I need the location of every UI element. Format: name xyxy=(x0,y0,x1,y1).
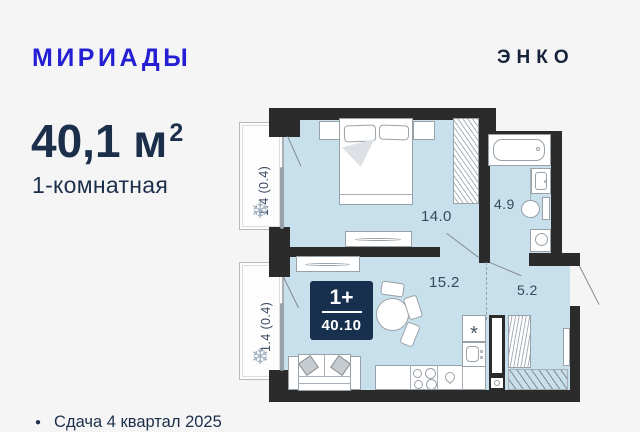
counter-divider xyxy=(410,365,411,390)
badge-divider xyxy=(322,311,362,313)
chair xyxy=(380,280,405,297)
pillow xyxy=(379,124,410,140)
sofa-armrest xyxy=(350,356,361,390)
label-bedroom-area: 14.0 xyxy=(421,209,452,224)
area-title: 40,1 м2 xyxy=(31,116,181,167)
developer-logo: ЭНКО xyxy=(497,47,575,69)
wall-bath-right xyxy=(551,131,562,261)
stove-burner xyxy=(414,380,423,389)
nightstand-right xyxy=(413,121,435,140)
snowflake-icon: ❄ xyxy=(251,346,269,368)
label-hall-area: 5.2 xyxy=(517,283,538,297)
area-superscript: 2 xyxy=(169,119,183,147)
stove-burner xyxy=(413,369,422,378)
vent-shaft xyxy=(489,315,505,376)
counter-divider xyxy=(462,365,463,390)
counter-divider xyxy=(437,365,438,390)
apartment-badge: 1+ 40.10 xyxy=(310,281,373,340)
wall-corner-tl xyxy=(269,108,300,137)
bath-sink-drain xyxy=(544,180,547,183)
delivery-text: Сдача 4 квартал 2025 xyxy=(54,413,222,432)
wall-bath-bottom xyxy=(529,253,580,266)
badge-area: 40.10 xyxy=(321,317,361,334)
hall-mirror xyxy=(563,328,570,366)
bed-fold-line xyxy=(340,194,412,195)
sink-basin xyxy=(466,346,479,362)
washing-machine-drum xyxy=(535,233,548,246)
faucet-dot xyxy=(480,350,483,353)
wardrobe-hall xyxy=(508,315,531,368)
stove-burner xyxy=(425,368,436,379)
label-bathroom-area: 4.9 xyxy=(494,197,515,211)
entry-mat xyxy=(508,369,568,390)
nightstand-left xyxy=(319,121,340,140)
brand-logo: МИРИАДЫ xyxy=(32,44,191,73)
snowflake-icon: ❄ xyxy=(251,200,269,222)
shaft-access-circle xyxy=(494,380,500,386)
bullet-icon: ● xyxy=(35,417,41,428)
faucet-dot xyxy=(480,356,483,359)
sofa-line xyxy=(298,383,351,384)
tv-stand-handle xyxy=(305,263,350,266)
listing-card: МИРИАДЫ ЭНКО 40,1 м2 1-комнатная xyxy=(0,0,640,429)
stove-burner xyxy=(426,379,437,390)
wall-right-lower xyxy=(570,306,580,402)
wall-left-mid xyxy=(269,227,290,277)
dresser-handle xyxy=(355,238,401,241)
sofa-armrest xyxy=(288,356,299,390)
zone-divider xyxy=(486,262,487,320)
balcony-door-bottom xyxy=(280,303,284,371)
wardrobe-bedroom xyxy=(453,118,479,204)
area-value: 40,1 м xyxy=(31,115,167,167)
label-living-area: 15.2 xyxy=(429,275,460,290)
wall-bottom xyxy=(269,390,580,402)
delivery-note: ● Сдача 4 квартал 2025 xyxy=(35,413,222,432)
toilet-tank xyxy=(542,197,550,220)
hob-cabinet: * xyxy=(462,315,486,342)
badge-rooms: 1+ xyxy=(330,287,354,308)
door-swing-entry xyxy=(579,266,599,305)
toilet-bowl xyxy=(521,200,540,218)
apartment-type: 1-комнатная xyxy=(32,172,168,199)
balcony-door-top xyxy=(280,167,284,229)
bathtub-drain xyxy=(536,147,540,151)
sofa-divider xyxy=(324,355,325,376)
